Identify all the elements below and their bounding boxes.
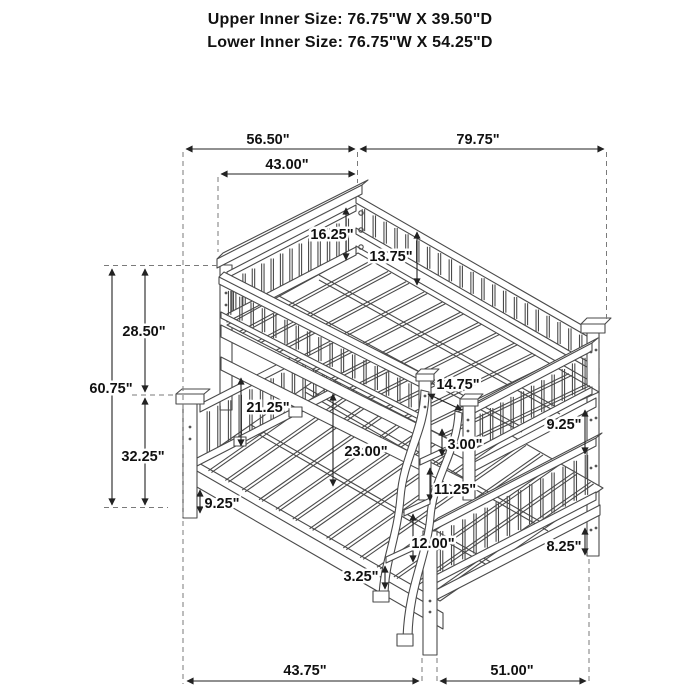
ladder-rear-foot (373, 591, 389, 602)
dim-label-left-rail-to-floor: 9.25" (204, 496, 239, 512)
dim-label-left-under-clearance: 21.25" (246, 400, 289, 416)
dim-label-headboard-outer-width: 43.00" (265, 157, 308, 173)
dim-label-center-under-clearance: 23.00" (344, 444, 387, 460)
dim-label-rung-spacing-lower: 12.00" (411, 536, 454, 552)
dim-label-top-right-length: 79.75" (456, 132, 499, 148)
dim-label-guardrail-height: 16.25" (310, 227, 353, 243)
dim-label-rung-spacing-upper: 11.25" (434, 482, 476, 498)
dim-label-rail-to-rung: 3.00" (447, 437, 482, 453)
dim-label-bottom-right-length: 51.00" (490, 663, 533, 679)
upper-inner-size-text: Upper Inner Size: 76.75"W X 39.50"D (0, 8, 700, 31)
dim-label-right-rail-to-floor: 8.25" (546, 539, 581, 555)
dim-label-lower-section-height: 32.25" (121, 449, 164, 465)
bunk-bed-dimension-diagram: Upper Inner Size: 76.75"W X 39.50"D Lowe… (0, 0, 700, 700)
bed-diagram-canvas: 56.50" 79.75" 43.00" 60.75" 28.50" 32.25… (0, 0, 700, 700)
dim-label-right-rail-gap: 9.25" (546, 417, 581, 433)
dim-label-total-height: 60.75" (89, 381, 132, 397)
dim-label-guardrail-to-deck: 13.75" (369, 249, 412, 265)
dim-label-upper-section-height: 28.50" (122, 324, 165, 340)
dim-label-post-inset: 14.75" (436, 377, 479, 393)
ladder-front-foot (397, 634, 413, 646)
lower-inner-size-text: Lower Inner Size: 76.75"W X 54.25"D (0, 31, 700, 54)
size-header: Upper Inner Size: 76.75"W X 39.50"D Lowe… (0, 8, 700, 54)
dim-label-bottom-left-depth: 43.75" (283, 663, 326, 679)
dim-label-top-left-width: 56.50" (246, 132, 289, 148)
dim-label-bottom-rung-to-floor: 3.25" (343, 569, 378, 585)
